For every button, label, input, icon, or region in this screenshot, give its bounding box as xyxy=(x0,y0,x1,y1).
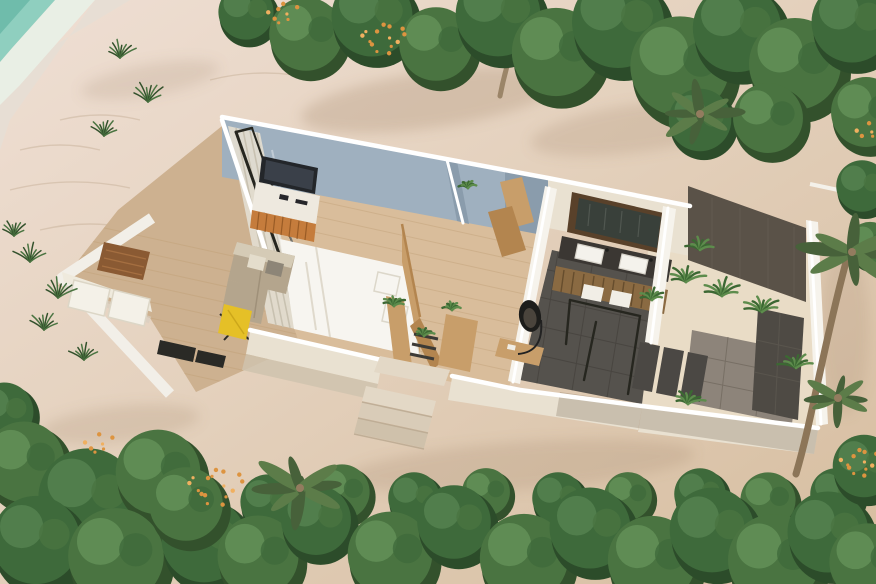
flower-cluster xyxy=(97,432,101,436)
flower-cluster xyxy=(852,472,855,475)
tree-canopy xyxy=(188,486,214,512)
faucet xyxy=(605,248,609,252)
villa-floorplan-render xyxy=(0,0,876,584)
tree-canopy xyxy=(770,487,789,506)
tree-canopy xyxy=(39,519,70,550)
palm-tree xyxy=(296,484,304,492)
tree-canopy xyxy=(621,0,653,32)
tree-canopy xyxy=(746,478,773,505)
flower-cluster xyxy=(851,454,855,458)
flower-cluster xyxy=(368,40,371,43)
render-canvas xyxy=(0,0,876,584)
flower-cluster xyxy=(83,440,87,444)
tree-canopy xyxy=(758,28,803,73)
flower-cluster xyxy=(206,476,210,480)
faucet-2 xyxy=(649,258,653,262)
tree-canopy xyxy=(77,518,124,565)
tree-canopy xyxy=(261,537,289,565)
tree-canopy xyxy=(456,504,482,530)
tree-canopy xyxy=(6,398,26,418)
tree-canopy xyxy=(308,16,334,42)
flower-cluster xyxy=(286,18,289,21)
tree-canopy xyxy=(616,525,659,568)
flower-cluster xyxy=(862,450,866,454)
flower-cluster xyxy=(222,484,225,487)
tree-canopy xyxy=(488,523,531,566)
flower-cluster xyxy=(387,24,391,28)
tree-canopy xyxy=(678,496,719,537)
flower-cluster xyxy=(402,32,406,36)
tree-canopy xyxy=(770,101,794,125)
tree-canopy xyxy=(838,84,872,118)
flower-cluster xyxy=(101,442,104,445)
tree-canopy xyxy=(488,481,505,498)
flower-cluster xyxy=(360,33,364,37)
flower-cluster xyxy=(863,460,866,463)
tree-canopy xyxy=(406,15,442,51)
tree-canopy xyxy=(737,524,782,569)
flower-cluster xyxy=(857,448,861,452)
flower-cluster xyxy=(390,45,393,48)
flower-cluster xyxy=(364,30,367,33)
tree-canopy xyxy=(537,478,562,503)
tree-canopy xyxy=(156,475,192,511)
flower-cluster xyxy=(855,128,859,132)
flower-cluster xyxy=(110,435,114,439)
flower-cluster xyxy=(400,27,404,31)
flower-cluster xyxy=(381,22,385,26)
tree-canopy xyxy=(640,27,689,76)
tree-canopy xyxy=(0,505,43,548)
flower-cluster xyxy=(191,476,194,479)
flower-cluster xyxy=(862,473,866,477)
flower-cluster xyxy=(870,463,874,467)
flower-cluster xyxy=(839,458,843,462)
tree-canopy xyxy=(557,496,597,536)
flower-cluster xyxy=(871,135,874,138)
flower-cluster xyxy=(214,468,218,472)
tree-canopy xyxy=(124,438,165,479)
tree-canopy xyxy=(393,478,418,503)
tree-canopy xyxy=(48,459,97,508)
tree-canopy xyxy=(520,17,563,60)
flower-cluster xyxy=(867,121,871,125)
flower-cluster xyxy=(864,468,867,471)
flower-cluster xyxy=(285,12,288,15)
flower-cluster xyxy=(221,469,225,473)
flower-cluster xyxy=(266,10,270,14)
tree-canopy xyxy=(740,90,774,124)
flower-cluster xyxy=(203,493,207,497)
flower-cluster xyxy=(387,51,391,55)
flower-cluster xyxy=(187,481,191,485)
tree-canopy xyxy=(593,509,621,537)
palm-tree xyxy=(848,248,856,256)
flower-cluster xyxy=(220,502,224,506)
tree-canopy xyxy=(795,500,835,540)
flower-cluster xyxy=(231,488,235,492)
tree-canopy xyxy=(225,524,265,564)
flower-cluster xyxy=(237,472,241,476)
tree-canopy xyxy=(356,520,397,561)
flower-cluster xyxy=(277,21,280,24)
flower-cluster xyxy=(240,479,244,483)
flower-cluster xyxy=(870,130,873,133)
tree-canopy xyxy=(119,533,152,566)
flower-cluster xyxy=(93,451,96,454)
flower-cluster xyxy=(197,489,200,492)
flower-cluster xyxy=(295,5,299,9)
flower-cluster xyxy=(89,446,93,450)
flower-cluster xyxy=(102,447,105,450)
tree-canopy xyxy=(841,166,866,191)
flower-cluster xyxy=(396,40,400,44)
flower-cluster xyxy=(860,134,864,138)
tree-canopy xyxy=(630,485,647,502)
tree-canopy xyxy=(344,479,363,498)
flower-cluster xyxy=(388,36,391,39)
flower-cluster xyxy=(375,29,379,33)
flower-cluster xyxy=(846,463,849,466)
bed-pillows xyxy=(374,272,400,296)
flower-cluster xyxy=(276,7,280,11)
flower-cluster xyxy=(272,17,276,21)
flower-cluster xyxy=(281,2,285,6)
palm-tree xyxy=(696,110,704,118)
flower-cluster xyxy=(375,50,378,53)
flower-cluster xyxy=(224,495,227,498)
palm-tree xyxy=(834,394,842,402)
tree-canopy xyxy=(424,493,460,529)
tree-canopy xyxy=(393,534,422,563)
flower-cluster xyxy=(206,502,209,505)
tree-canopy xyxy=(276,5,312,41)
tree-canopy xyxy=(837,531,875,569)
flower-cluster xyxy=(210,475,213,478)
